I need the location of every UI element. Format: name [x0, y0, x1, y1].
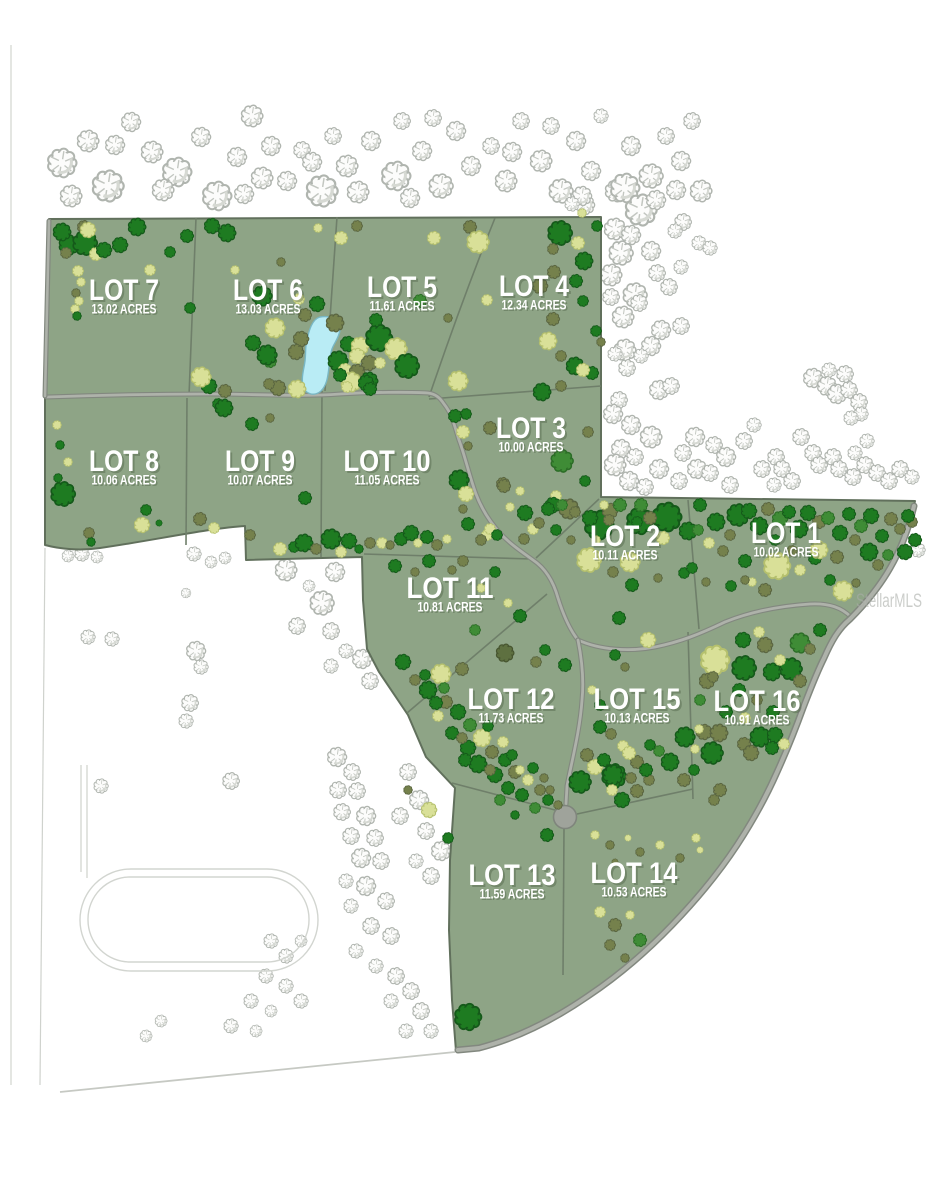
- svg-text:StellarMLS: StellarMLS: [856, 591, 922, 612]
- svg-text:10.53 ACRES: 10.53 ACRES: [602, 884, 667, 899]
- svg-text:10.07 ACRES: 10.07 ACRES: [228, 472, 293, 487]
- svg-text:12.34 ACRES: 12.34 ACRES: [502, 297, 567, 312]
- svg-text:10.91 ACRES: 10.91 ACRES: [725, 712, 790, 727]
- svg-text:11.61 ACRES: 11.61 ACRES: [370, 298, 435, 313]
- svg-text:11.73 ACRES: 11.73 ACRES: [479, 710, 544, 725]
- svg-text:13.03 ACRES: 13.03 ACRES: [236, 301, 301, 316]
- svg-text:10.81 ACRES: 10.81 ACRES: [418, 599, 483, 614]
- svg-text:10.11 ACRES: 10.11 ACRES: [593, 547, 658, 562]
- svg-text:11.05 ACRES: 11.05 ACRES: [355, 472, 420, 487]
- svg-text:10.13 ACRES: 10.13 ACRES: [605, 710, 670, 725]
- svg-text:10.00 ACRES: 10.00 ACRES: [499, 439, 564, 454]
- svg-text:13.02 ACRES: 13.02 ACRES: [92, 301, 157, 316]
- svg-text:10.02 ACRES: 10.02 ACRES: [754, 544, 819, 559]
- svg-text:10.06 ACRES: 10.06 ACRES: [92, 472, 157, 487]
- svg-text:11.59 ACRES: 11.59 ACRES: [480, 886, 545, 901]
